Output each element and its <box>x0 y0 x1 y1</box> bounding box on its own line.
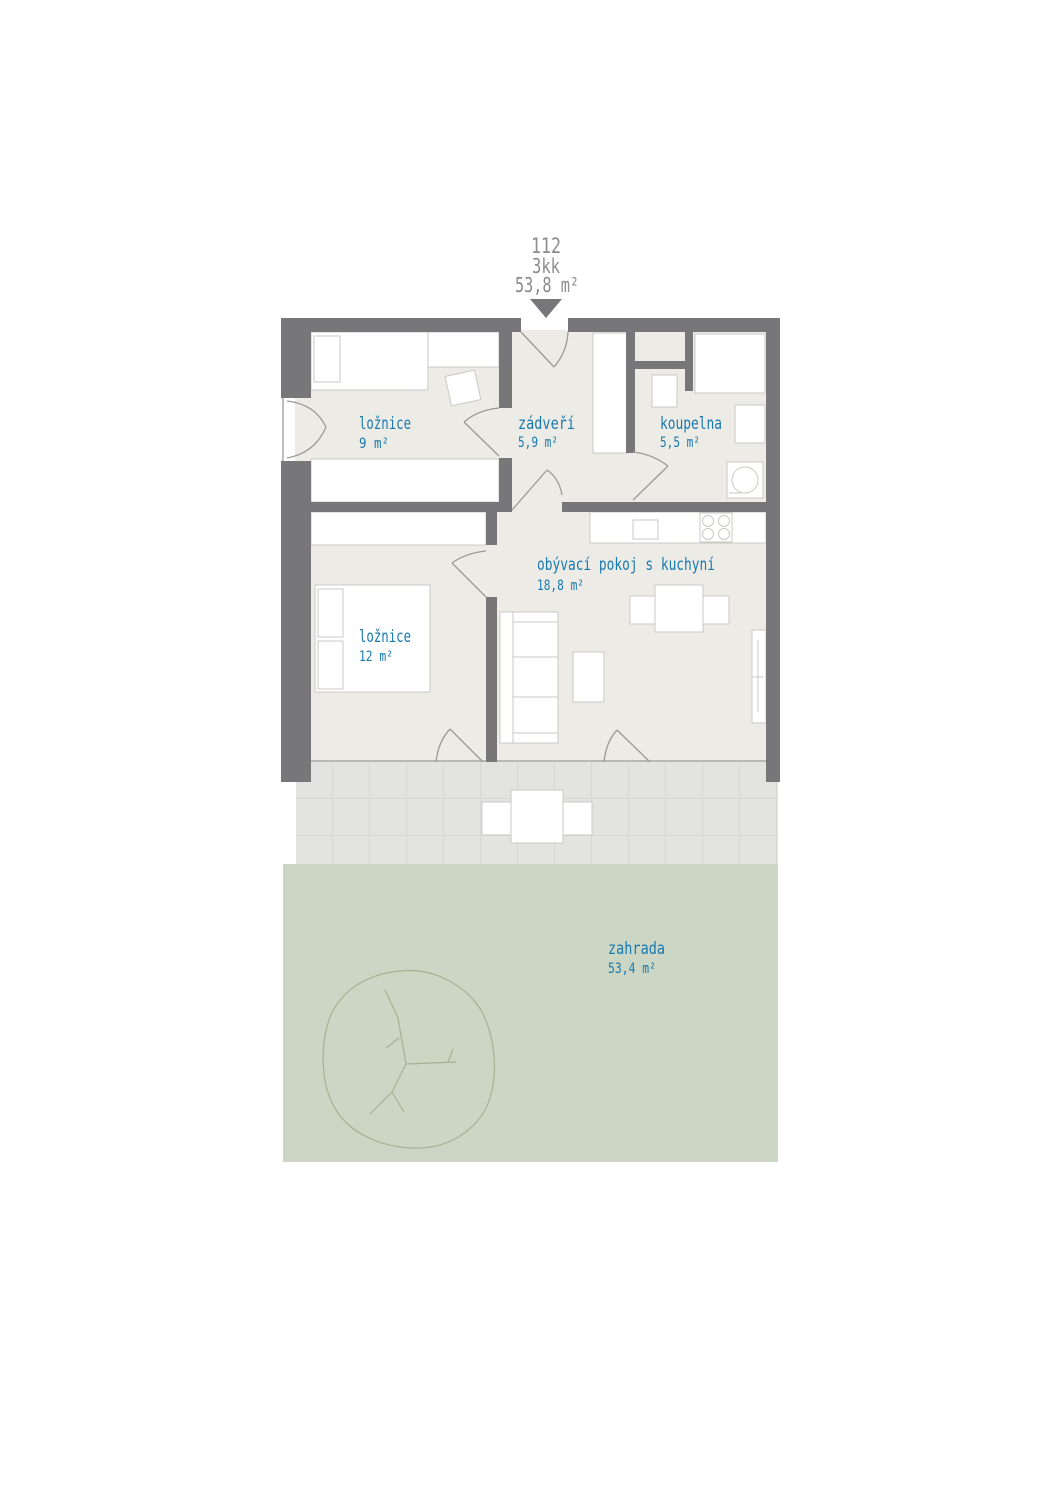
closet-top <box>428 332 499 367</box>
unit-total-area: 53,8 m² <box>515 273 579 297</box>
single-bed <box>311 332 428 390</box>
toilet <box>652 375 677 407</box>
wall-bedroom1-hall-lower <box>499 458 512 512</box>
exterior-wall-top-left <box>281 318 521 332</box>
label-loznice-1-name: ložnice <box>359 414 411 434</box>
dining-chair-left <box>630 596 655 624</box>
wall-bedroom2-living-lower <box>486 597 497 762</box>
floor-plan-page: 112 3kk 53,8 m² zahrada 53,4 m² ložnice … <box>0 0 1058 1497</box>
dining-table <box>655 585 703 632</box>
exterior-wall-left-lower <box>281 461 311 782</box>
label-koupelna-area: 5,5 m² <box>660 435 700 451</box>
exterior-wall-left-upper <box>281 318 311 398</box>
washbasin <box>735 405 765 443</box>
wall-bedroom2-living-upper <box>486 512 497 545</box>
wall-bedroom1-hall-upper <box>499 332 512 408</box>
label-zadveri-area: 5,9 m² <box>518 435 558 451</box>
label-obyvaci-name: obývací pokoj s kuchyní <box>537 555 715 575</box>
label-loznice-2-area: 12 m² <box>359 649 393 665</box>
floor-plan-drawing: 112 3kk 53,8 m² zahrada 53,4 m² ložnice … <box>0 0 1058 1497</box>
garden: zahrada 53,4 m² <box>283 864 778 1162</box>
label-zadveri-name: zádveří <box>518 414 575 434</box>
exterior-wall-right <box>766 318 780 782</box>
wardrobe-band <box>311 459 499 502</box>
terrace-chair-right <box>563 802 592 835</box>
dining-chair-right <box>703 596 729 624</box>
wall-bathroom-niche-v <box>685 332 693 391</box>
label-obyvaci-area: 18,8 m² <box>537 578 584 594</box>
coffee-table <box>573 652 604 702</box>
wardrobe-band <box>311 512 486 545</box>
nightstand <box>445 370 481 406</box>
label-zahrada-name: zahrada <box>608 939 665 959</box>
unit-header: 112 3kk 53,8 m² <box>515 234 579 318</box>
terrace <box>296 762 778 864</box>
hall-wardrobe <box>593 333 628 453</box>
terrace-chair-left <box>482 802 511 835</box>
entrance-arrow-icon <box>530 299 562 318</box>
garden-area <box>283 864 778 1162</box>
terrace-table <box>511 790 563 843</box>
bathtub <box>695 334 765 393</box>
wall-bedrooms-horizontal <box>311 502 499 512</box>
wall-bathroom-niche-h <box>633 361 693 369</box>
exterior-wall-top-right <box>568 318 780 332</box>
label-koupelna-name: koupelna <box>660 414 722 434</box>
label-loznice-1-area: 9 m² <box>359 436 389 452</box>
wall-hall-bathroom <box>626 332 635 453</box>
sofa <box>500 612 558 743</box>
label-zahrada-area: 53,4 m² <box>608 961 656 977</box>
wall-living-top <box>562 502 766 512</box>
kitchen-counter <box>590 512 766 543</box>
label-loznice-2-name: ložnice <box>359 627 411 647</box>
